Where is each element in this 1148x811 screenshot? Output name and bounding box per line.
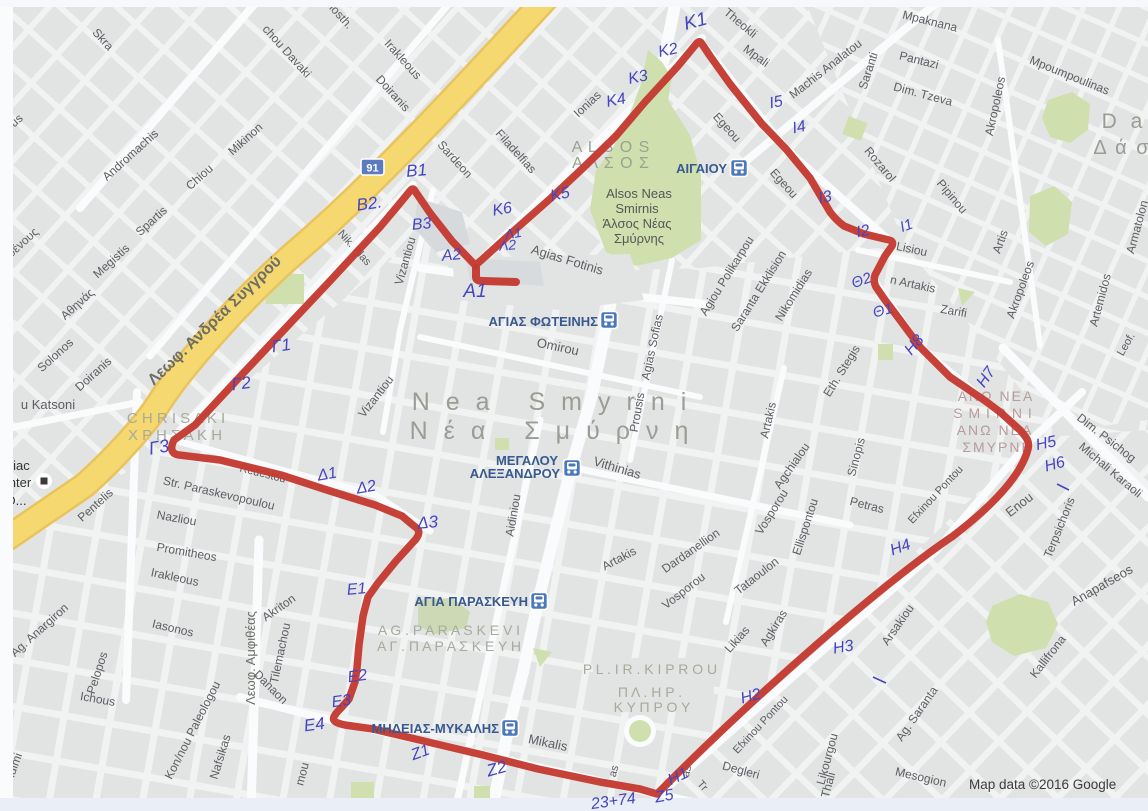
svg-text:91: 91 [366, 163, 378, 175]
svg-text:Nea Smyrni: Nea Smyrni [412, 388, 703, 416]
svg-text:ΜΗΔΕΙΑΣ-ΜΥΚΑΛΗΣ: ΜΗΔΕΙΑΣ-ΜΥΚΑΛΗΣ [372, 721, 500, 736]
svg-text:Κ6: Κ6 [491, 199, 513, 219]
svg-text:Δ3: Δ3 [415, 512, 439, 533]
svg-text:Ε4: Ε4 [303, 714, 326, 736]
svg-text:ΑΓΙΑ ΠΑΡΑΣΚΕΥΗ: ΑΓΙΑ ΠΑΡΑΣΚΕΥΗ [414, 594, 528, 609]
svg-text:Κ Υ Π Ρ Ο Υ: Κ Υ Π Ρ Ο Υ [614, 699, 691, 715]
svg-text:Ε1: Ε1 [346, 580, 367, 599]
svg-text:Σμύρνης: Σμύρνης [614, 231, 664, 246]
svg-text:Α Γ . Π Α Ρ Α Σ Κ Ε Υ Η: Α Γ . Π Α Ρ Α Σ Κ Ε Υ Η [377, 638, 521, 654]
svg-text:Map data ©2016 Google: Map data ©2016 Google [969, 777, 1116, 792]
svg-text:ΑΓΙΑΣ ΦΩΤΕΙΝΗΣ: ΑΓΙΑΣ ΦΩΤΕΙΝΗΣ [488, 314, 598, 329]
svg-text:A G . P A R A S K E V I: A G . P A R A S K E V I [378, 622, 520, 638]
svg-text:Ε3: Ε3 [330, 692, 352, 712]
svg-text:Smirnis: Smirnis [615, 201, 659, 216]
svg-text:liac: liac [10, 458, 30, 473]
svg-text:Ε2: Ε2 [346, 667, 368, 687]
svg-text:Άλσος Νέας: Άλσος Νέας [602, 216, 671, 231]
svg-text:ΣΜΥΡΝΗ: ΣΜΥΡΝΗ [962, 439, 1033, 455]
svg-text:Η3: Η3 [832, 637, 855, 657]
svg-text:Β1: Β1 [405, 160, 427, 181]
svg-text:Β2.: Β2. [355, 192, 383, 214]
svg-text:P L . I R . K I P R O U: P L . I R . K I P R O U [583, 661, 717, 677]
svg-text:Δ2: Δ2 [354, 477, 377, 497]
svg-text:Λεωφ. Αμφιθέας: Λεωφ. Αμφιθέας [243, 611, 258, 705]
svg-text:Γ2: Γ2 [230, 373, 252, 395]
svg-text:Α2: Α2 [440, 246, 462, 265]
svg-text:Γ3: Γ3 [147, 435, 170, 458]
svg-text:ΑΛΕΞΑΝΔΡΟΥ: ΑΛΕΞΑΝΔΡΟΥ [470, 466, 561, 481]
svg-text:Alsos Neas: Alsos Neas [606, 186, 672, 201]
svg-text:Β3: Β3 [411, 215, 432, 234]
svg-text:Δ1: Δ1 [315, 464, 338, 484]
svg-text:u Katsoni: u Katsoni [21, 397, 75, 412]
svg-text:ΑΙΓΑΙΟΥ: ΑΙΓΑΙΟΥ [676, 161, 727, 176]
svg-text:Γ1: Γ1 [270, 335, 292, 356]
svg-text:D a: D a [1102, 110, 1147, 133]
svg-text:Λ2: Λ2 [497, 236, 517, 254]
svg-text:Ζ5: Ζ5 [653, 787, 675, 807]
svg-text:Π Λ . Η Ρ .: Π Λ . Η Ρ . [618, 684, 682, 700]
svg-text:Δ ά σ: Δ ά σ [1093, 137, 1148, 159]
svg-text:Α1: Α1 [462, 281, 486, 302]
svg-text:Νέα Σμύρνη: Νέα Σμύρνη [410, 417, 705, 445]
